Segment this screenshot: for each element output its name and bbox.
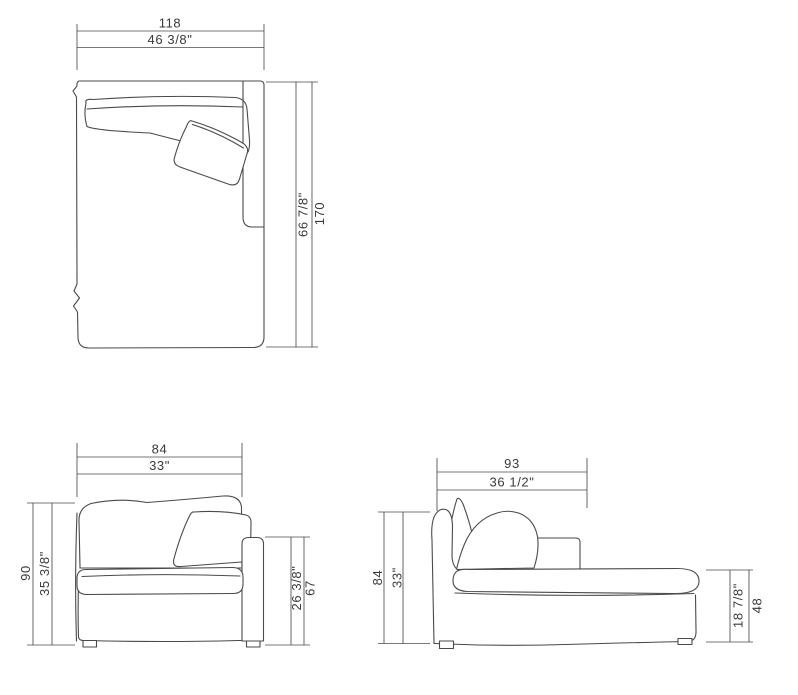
base-outline [435, 595, 697, 645]
dim-label-side-seat-in: 18 7/8" [731, 583, 746, 628]
front-view-width-dimension: 84 33" [77, 442, 242, 498]
seat-cushion [77, 568, 243, 595]
side-view: 93 36 1/2" 84 33" 18 7/8" 48 [370, 456, 765, 649]
side-view-height-dimension: 84 33" [370, 512, 430, 644]
top-view: 118 46 3/8" 66 7/8" 170 [73, 16, 327, 349]
dim-label-top-width-cm: 118 [159, 16, 182, 31]
back-cushion-seam [87, 106, 243, 109]
dim-label-side-height-cm: 84 [370, 570, 385, 586]
sofa-body-outline [73, 81, 264, 348]
top-view-drawing [73, 81, 264, 348]
front-view: 84 33" 90 35 3/8" 26 3/8" 67 [18, 442, 318, 648]
dim-label-front-arm-cm: 67 [303, 580, 318, 596]
seat-cushion [453, 569, 699, 594]
foot [440, 641, 454, 649]
foot [678, 639, 692, 645]
foot [247, 641, 261, 647]
dim-label-front-width-in: 33" [149, 458, 170, 473]
diagram-svg: 118 46 3/8" 66 7/8" 170 [0, 0, 798, 695]
dim-label-front-width-cm: 84 [152, 442, 168, 457]
dim-label-front-height-in: 35 3/8" [37, 551, 52, 596]
dim-label-side-seat-cm: 48 [750, 598, 765, 614]
dim-label-top-depth-cm: 170 [312, 202, 327, 226]
dim-label-side-depth-in: 36 1/2" [490, 475, 535, 490]
side-view-drawing [432, 498, 699, 648]
furniture-dimension-diagram: 118 46 3/8" 66 7/8" 170 [0, 0, 798, 695]
front-view-height-dimension: 90 35 3/8" [18, 503, 75, 645]
dim-label-side-height-in: 33" [390, 567, 405, 588]
front-view-drawing [76, 496, 264, 647]
dim-label-front-height-cm: 90 [18, 565, 33, 581]
dim-label-top-depth-in: 66 7/8" [296, 192, 311, 237]
foot [83, 641, 97, 648]
armrest [242, 538, 264, 642]
throw-pillow [174, 121, 248, 185]
side-view-seat-height-dimension: 18 7/8" 48 [706, 570, 765, 642]
top-view-depth-dimension: 66 7/8" 170 [266, 82, 327, 347]
dim-label-top-width-in: 46 3/8" [148, 32, 193, 47]
front-view-arm-height-dimension: 26 3/8" 67 [265, 537, 318, 645]
top-view-width-dimension: 118 46 3/8" [77, 16, 264, 71]
dim-label-side-depth-cm: 93 [504, 456, 520, 471]
